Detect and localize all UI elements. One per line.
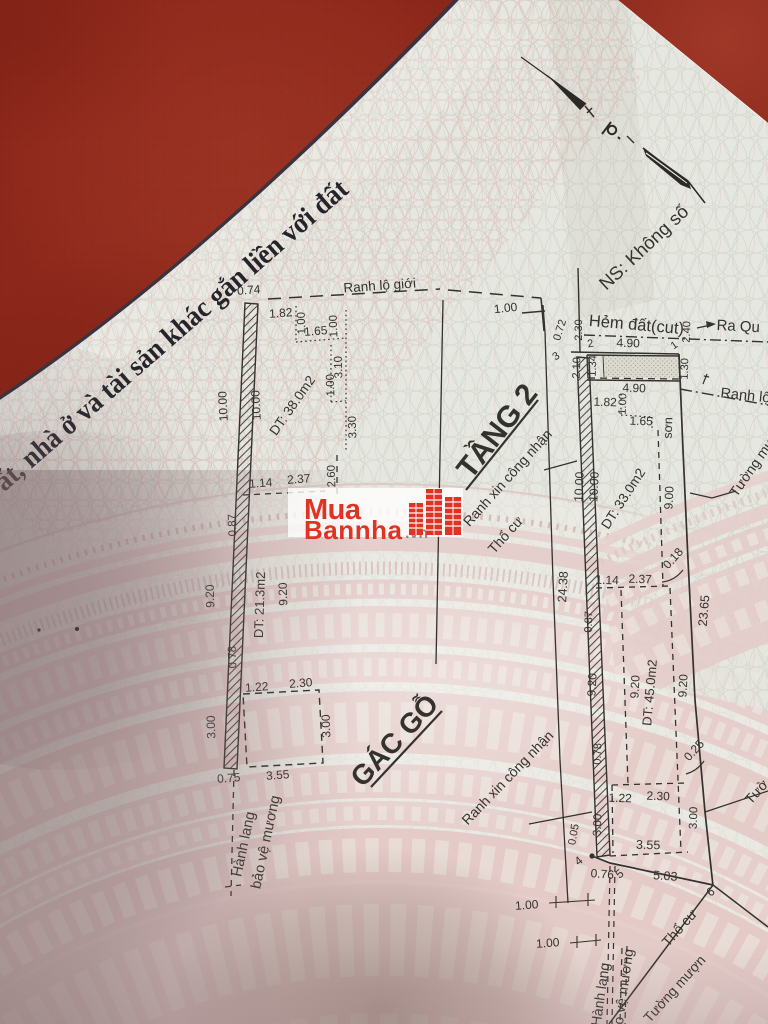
svg-text:10.00: 10.00 [248, 390, 264, 421]
svg-text:1.34: 1.34 [587, 355, 600, 377]
svg-text:10.00: 10.00 [571, 471, 587, 502]
svg-text:Ra Qu: Ra Qu [716, 317, 760, 336]
svg-text:9.00: 9.00 [661, 485, 676, 509]
svg-text:2.40: 2.40 [681, 321, 694, 343]
svg-text:3.55: 3.55 [636, 838, 661, 853]
svg-text:1.00: 1.00 [325, 374, 338, 397]
svg-text:1.00: 1.00 [493, 300, 518, 316]
svg-text:1.00: 1.00 [617, 393, 630, 415]
svg-text:0.76: 0.76 [590, 866, 615, 882]
svg-text:9.20: 9.20 [627, 674, 642, 698]
svg-text:0.87: 0.87 [583, 611, 596, 633]
svg-text:1.65: 1.65 [304, 323, 329, 339]
svg-text:4.90: 4.90 [616, 336, 640, 351]
svg-text:10.00: 10.00 [586, 471, 602, 502]
svg-text:sơn: sơn [661, 417, 676, 439]
svg-text:2.10: 2.10 [571, 357, 584, 379]
svg-text:2.30: 2.30 [646, 789, 670, 804]
svg-text:1.30: 1.30 [679, 358, 692, 380]
svg-text:9.20: 9.20 [675, 673, 690, 697]
svg-text:1.14: 1.14 [595, 573, 619, 588]
svg-text:Bannha: Bannha [304, 515, 403, 545]
svg-text:1.82: 1.82 [593, 395, 617, 410]
svg-text:5.03: 5.03 [653, 868, 678, 884]
svg-text:3.00: 3.00 [688, 806, 701, 829]
svg-text:1.82: 1.82 [269, 305, 294, 321]
svg-text:3.30: 3.30 [347, 416, 360, 439]
svg-text:24.38: 24.38 [555, 571, 571, 603]
svg-text:1.65: 1.65 [629, 414, 653, 429]
svg-text:4.90: 4.90 [622, 381, 646, 396]
svg-text:2.37: 2.37 [628, 572, 652, 587]
svg-text:23.65: 23.65 [696, 594, 713, 626]
svg-text:1.00: 1.00 [328, 315, 341, 338]
svg-text:1.22: 1.22 [608, 791, 632, 806]
svg-text:10.00: 10.00 [215, 391, 231, 422]
svg-text:9.20: 9.20 [584, 672, 599, 696]
svg-text:2.30: 2.30 [573, 319, 585, 340]
svg-text:3.00: 3.00 [592, 813, 605, 836]
svg-text:0.78: 0.78 [592, 743, 605, 765]
